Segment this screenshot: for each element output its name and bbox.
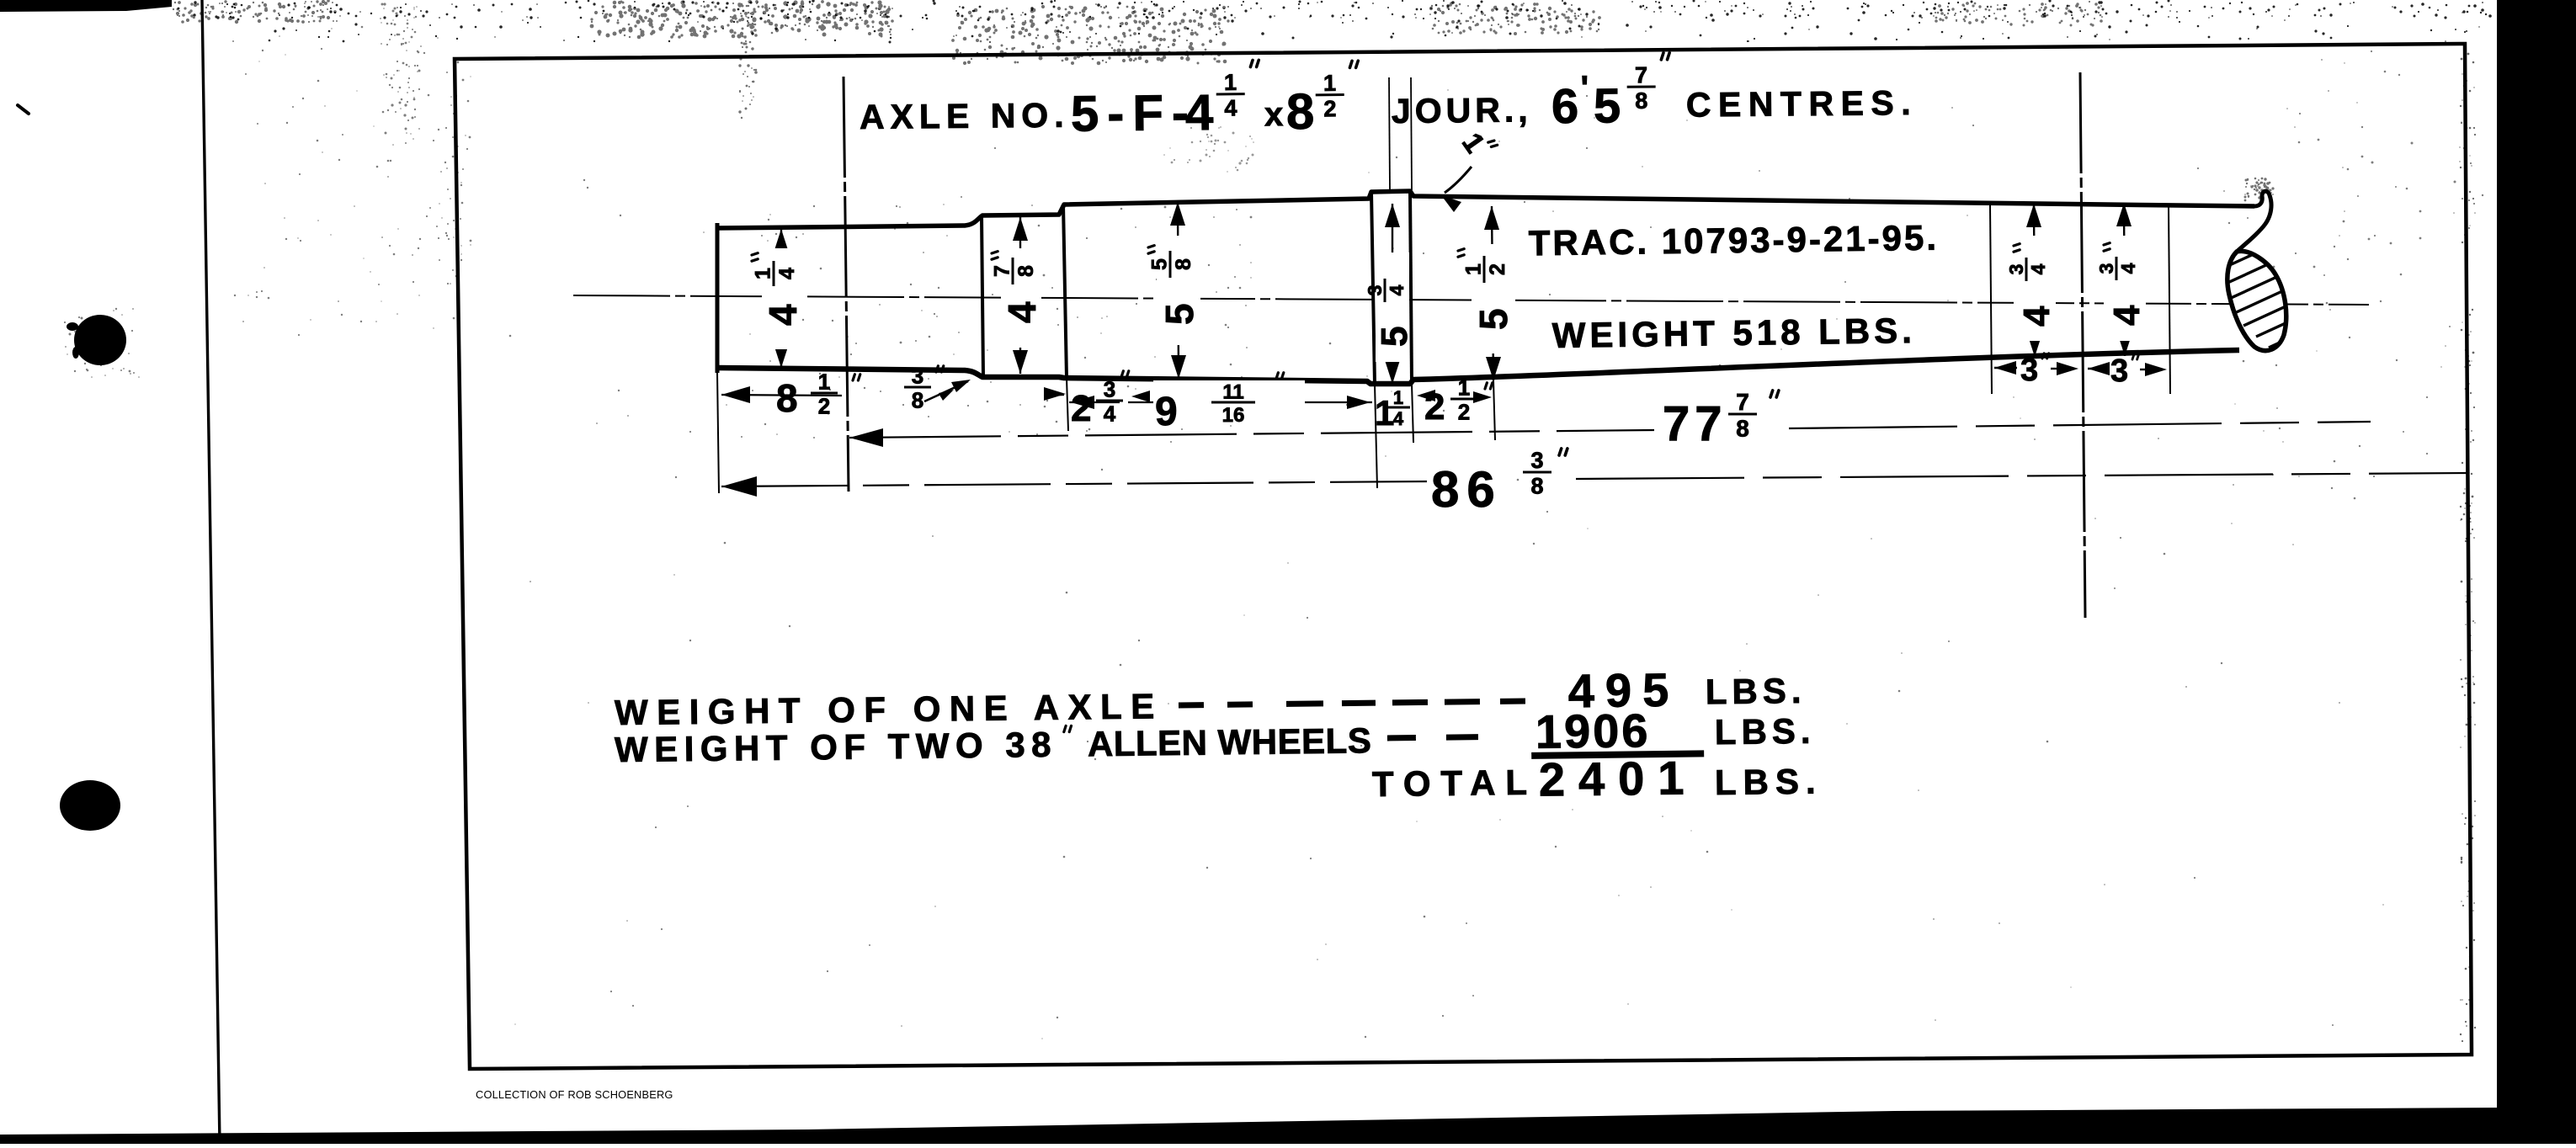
svg-text:1: 1 (1224, 70, 1237, 95)
svg-text:3: 3 (2020, 353, 2038, 388)
svg-text:1: 1 (1458, 375, 1470, 400)
svg-text:11: 11 (1222, 381, 1243, 404)
svg-text:4: 4 (1393, 408, 1404, 429)
svg-text:ALLEN WHEELS: ALLEN WHEELS (1088, 720, 1372, 763)
svg-text:4: 4 (1386, 284, 1408, 295)
svg-text:WEIGHT 518 LBS.: WEIGHT 518 LBS. (1551, 311, 1916, 355)
svg-text:1: 1 (1462, 263, 1486, 275)
svg-text:COLLECTION OF ROB SCHOENBERG: COLLECTION OF ROB SCHOENBERG (476, 1088, 673, 1101)
svg-text:8: 8 (1635, 88, 1647, 114)
svg-text:2: 2 (1323, 96, 1336, 121)
svg-text:8: 8 (912, 388, 923, 413)
svg-text:5: 5 (1594, 78, 1621, 133)
svg-text:8: 8 (1014, 265, 1038, 277)
svg-text:3: 3 (1364, 285, 1386, 296)
svg-text:3: 3 (1104, 376, 1115, 401)
svg-text:8: 8 (1736, 416, 1749, 442)
svg-text:2401: 2401 (1539, 751, 1698, 805)
svg-text:8: 8 (1172, 258, 1195, 270)
svg-text:8: 8 (1286, 83, 1315, 140)
svg-text:3: 3 (2095, 263, 2117, 274)
svg-text:WEIGHT OF TWO 38: WEIGHT OF TWO 38 (615, 725, 1058, 769)
svg-text:77: 77 (1663, 396, 1727, 451)
svg-text:': ' (1580, 70, 1589, 107)
svg-text:5: 5 (1158, 303, 1201, 325)
svg-text:AXLE NO.: AXLE NO. (860, 96, 1070, 136)
svg-text:1906: 1906 (1535, 704, 1650, 758)
svg-text:TRAC. 10793-9-21-95.: TRAC. 10793-9-21-95. (1528, 218, 1939, 263)
svg-text:4: 4 (775, 268, 799, 279)
svg-text:2: 2 (1071, 388, 1091, 429)
svg-text:4: 4 (1185, 84, 1215, 141)
svg-text:3: 3 (912, 363, 923, 388)
svg-text:3: 3 (1530, 448, 1543, 473)
svg-text:1: 1 (752, 268, 775, 279)
svg-text:7: 7 (991, 265, 1014, 277)
svg-text:4: 4 (761, 304, 805, 326)
svg-text:JOUR.,: JOUR., (1392, 90, 1532, 130)
svg-text:5: 5 (1374, 327, 1415, 347)
svg-text:7: 7 (1736, 389, 1749, 415)
svg-text:9: 9 (1155, 390, 1178, 434)
svg-text:4: 4 (1000, 301, 1044, 323)
svg-text:5: 5 (1148, 258, 1172, 270)
svg-text:LBS.: LBS. (1706, 671, 1807, 711)
svg-text:5: 5 (1472, 308, 1515, 330)
svg-text:2: 2 (1458, 400, 1470, 425)
svg-text:2: 2 (1424, 386, 1445, 428)
svg-text:8: 8 (776, 376, 798, 420)
svg-text:CENTRES.: CENTRES. (1686, 83, 1919, 125)
svg-text:TOTAL: TOTAL (1372, 763, 1538, 804)
svg-text:LBS.: LBS. (1715, 762, 1823, 803)
svg-text:4: 4 (1104, 401, 1116, 427)
svg-text:2: 2 (1486, 263, 1509, 275)
svg-text:1: 1 (1393, 387, 1403, 408)
svg-text:86: 86 (1431, 461, 1503, 518)
svg-text:6: 6 (1551, 79, 1579, 134)
svg-text:4: 4 (1224, 95, 1237, 120)
svg-text:LBS.: LBS. (1715, 711, 1816, 752)
svg-text:4: 4 (2106, 305, 2148, 326)
svg-text:3: 3 (2005, 264, 2027, 275)
svg-text:1: 1 (1375, 393, 1394, 433)
svg-text:WEIGHT OF ONE AXLE: WEIGHT OF ONE AXLE (615, 686, 1163, 732)
svg-text:1: 1 (1323, 71, 1336, 96)
svg-text:1: 1 (818, 369, 830, 394)
svg-text:4: 4 (2117, 263, 2139, 274)
svg-text:3: 3 (2110, 353, 2128, 389)
svg-text:4: 4 (2016, 306, 2057, 327)
svg-text:4: 4 (2027, 263, 2049, 274)
svg-text:2: 2 (818, 394, 830, 419)
svg-text:x: x (1264, 96, 1284, 133)
svg-text:16: 16 (1222, 404, 1245, 427)
svg-text:5-F-: 5-F- (1071, 84, 1198, 141)
svg-text:7: 7 (1635, 62, 1647, 88)
svg-text:8: 8 (1530, 474, 1543, 499)
